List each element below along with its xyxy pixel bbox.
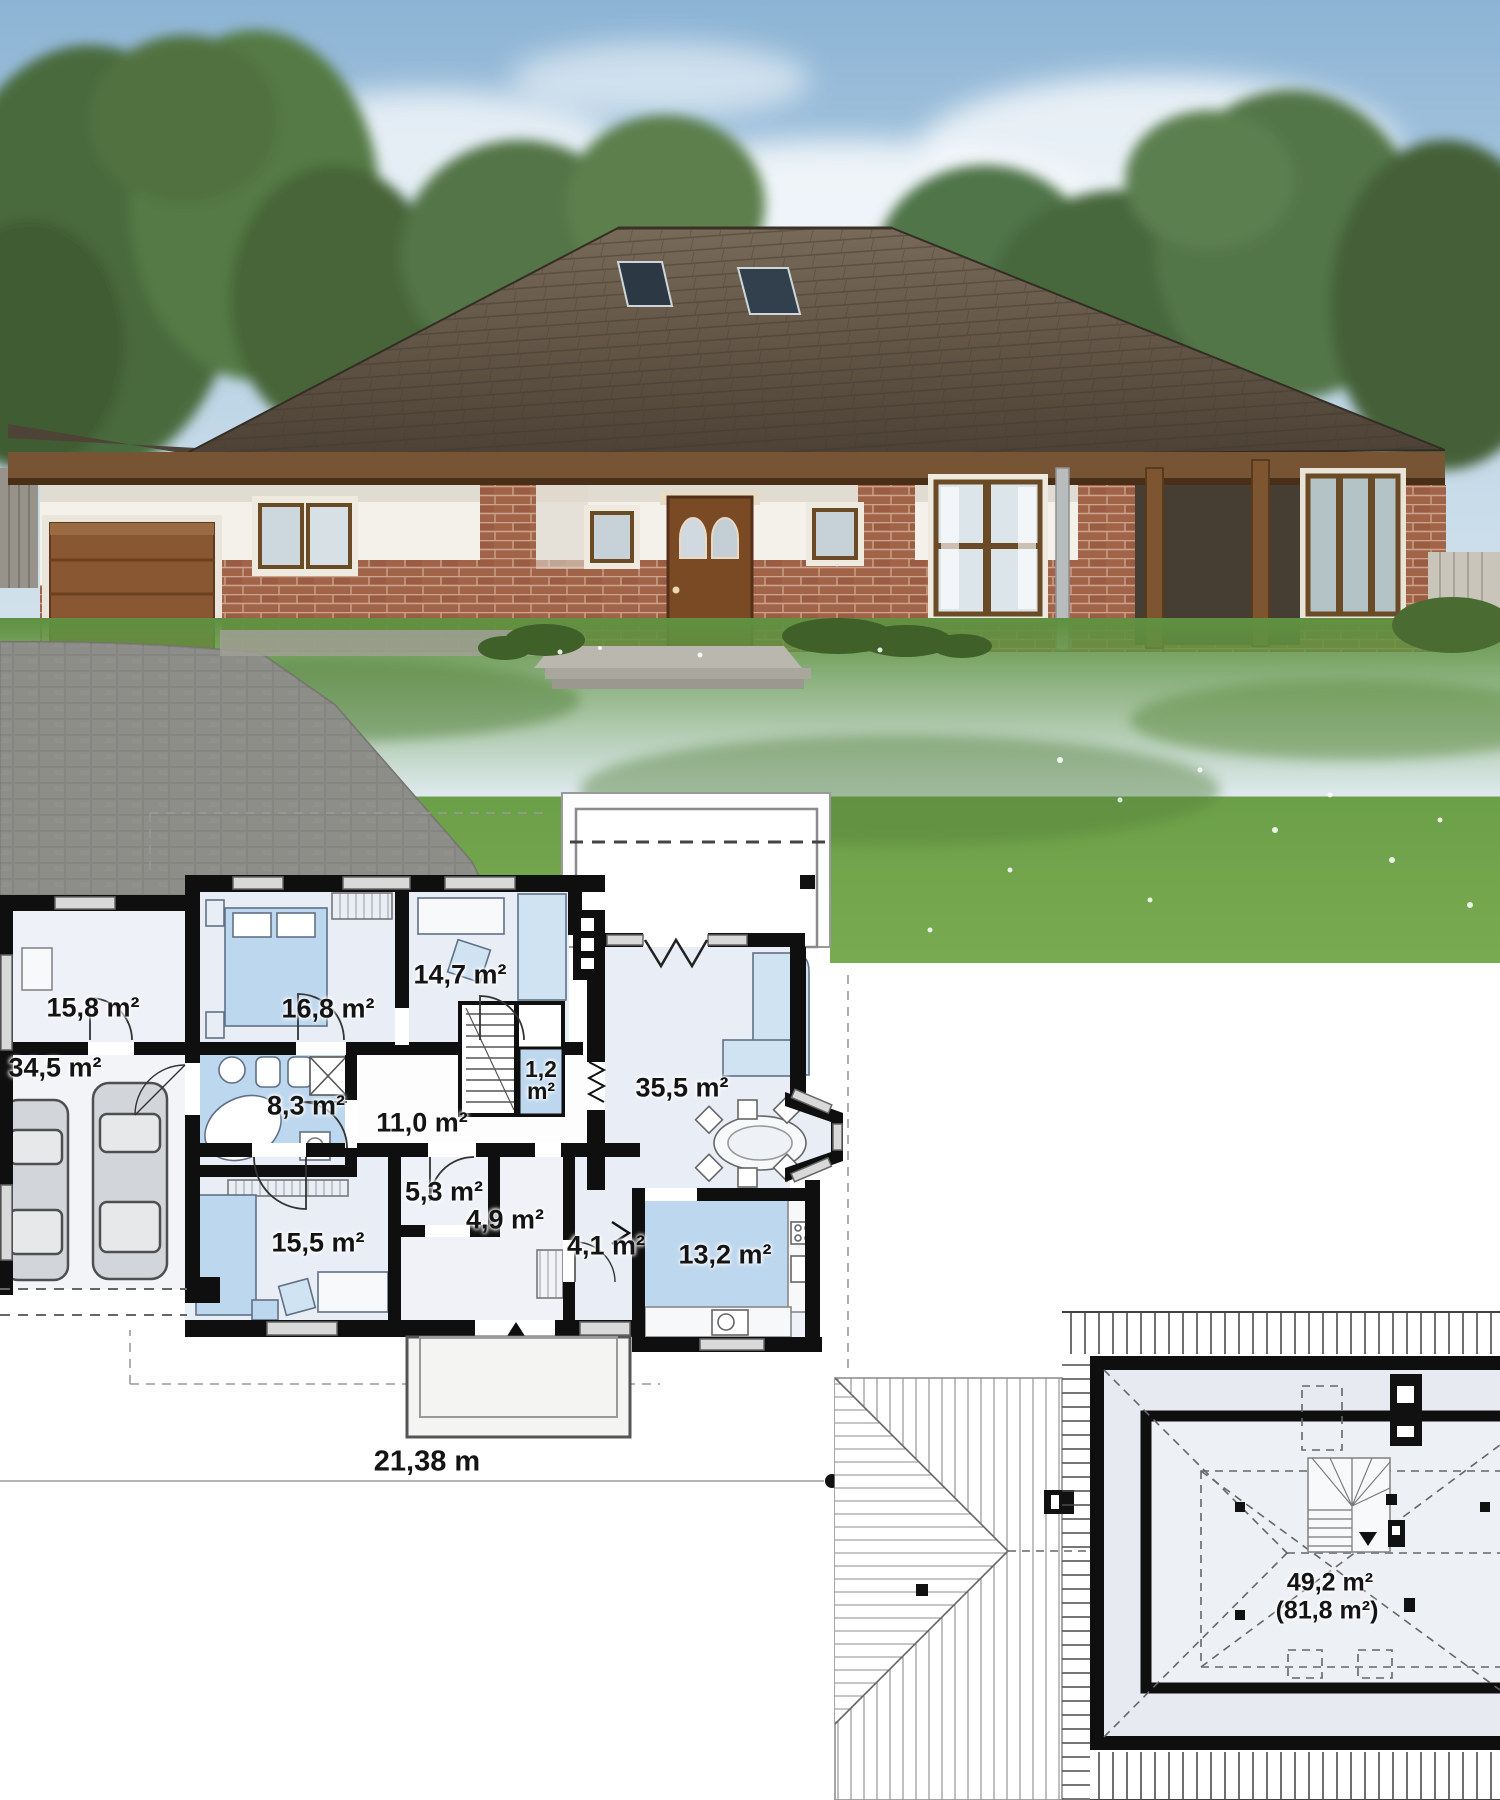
- room-area-label-living: 35,5 m²: [635, 1073, 728, 1104]
- room-area-label-hall: 11,0 m²: [376, 1108, 468, 1139]
- overall-width-label: 21,38 m: [374, 1446, 480, 1479]
- attic-gross-area-label: (81,8 m²): [1276, 1597, 1379, 1626]
- window: [260, 505, 302, 567]
- door-arch-window: [712, 518, 738, 558]
- skylight-icon: [738, 268, 800, 314]
- room-area-label-entry: 4,9 m²: [466, 1205, 544, 1236]
- window: [308, 505, 350, 567]
- attic-stairs: [1308, 1458, 1390, 1552]
- entry-porch: [407, 1337, 630, 1437]
- room-area-label-bathroom: 8,3 m²: [267, 1091, 345, 1122]
- page: 15,8 m² 34,5 m² 16,8 m² 14,7 m² 8,3 m² 1…: [0, 0, 1500, 1800]
- room-area-label-bedroom2: 15,5 m²: [271, 1228, 364, 1259]
- room-area-label-wardrobe: 5,3 m²: [405, 1177, 483, 1208]
- room-area-label-kitchen: 13,2 m²: [678, 1240, 771, 1271]
- window-small: [592, 513, 632, 561]
- room-area-label-bedroom1: 16,8 m²: [281, 994, 374, 1025]
- room-area-label-garage: 34,5 m²: [8, 1053, 101, 1084]
- window-corner: [1308, 476, 1398, 614]
- attic-usable-area-label: 49,2 m²: [1287, 1569, 1373, 1598]
- room-area-label-closet: 1,2 m²: [515, 1059, 567, 1103]
- skylight-icon: [618, 262, 672, 306]
- door-arch-window: [680, 518, 706, 558]
- attic-roof-plan: [835, 1312, 1500, 1800]
- room-area-label-utility: 15,8 m²: [46, 993, 139, 1024]
- scene-graphics: [0, 0, 1500, 1800]
- room-area-label-office: 14,7 m²: [413, 960, 506, 991]
- room-area-label-pantry: 4,1 m²: [567, 1231, 645, 1262]
- window-small: [814, 510, 856, 558]
